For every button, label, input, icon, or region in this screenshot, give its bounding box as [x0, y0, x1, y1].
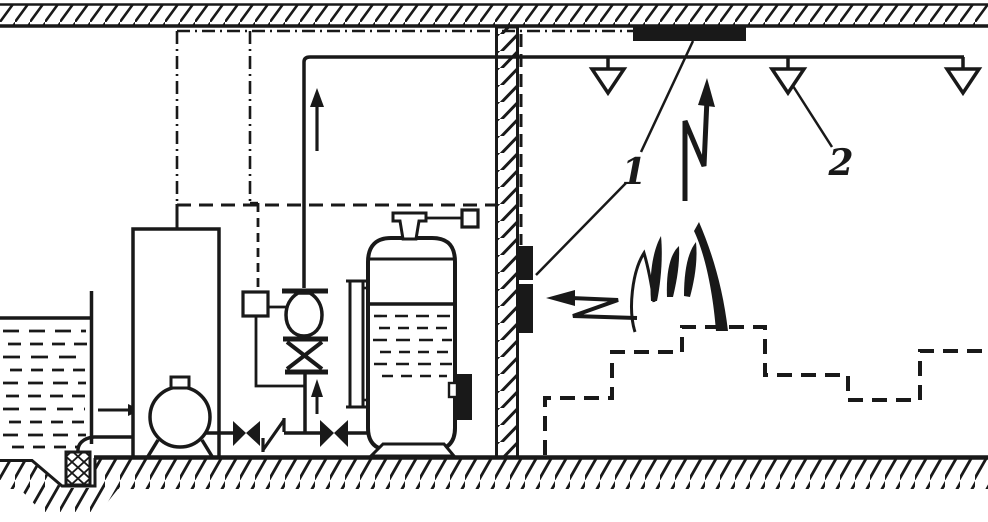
sprinkler-icon [772, 57, 804, 93]
stacked-goods-outline [545, 327, 986, 455]
wall-fire-detector [516, 246, 533, 333]
heat-bolt-up-icon [685, 78, 715, 201]
fitting-box [462, 210, 478, 227]
vessel-skirt [371, 444, 454, 456]
fire-suppression-schematic: 1 2 [0, 0, 988, 522]
level-gauge [346, 281, 369, 407]
gate-valve-icon [233, 421, 260, 446]
pump-nub [171, 377, 189, 388]
heat-bolt-left-icon [546, 290, 637, 318]
foot-valve-strainer [66, 452, 90, 485]
wall-hatch [497, 27, 518, 457]
pump-casing [150, 387, 210, 447]
flames-icon [632, 222, 728, 332]
floor [0, 458, 988, 514]
callout-label-2: 2 [827, 142, 853, 184]
deluge-valve-assembly [243, 291, 328, 433]
ceiling [0, 5, 988, 27]
sprinkler-icon [592, 57, 624, 93]
schematic-canvas: 1 2 [0, 0, 988, 522]
check-valve-icon [263, 418, 284, 452]
gate-valve-icon [320, 420, 348, 447]
pneumatic-tank [346, 210, 478, 456]
valve-bulb [286, 293, 322, 336]
leader-line-2 [793, 86, 832, 147]
discharge-line [205, 418, 372, 452]
floor-hatch [0, 459, 988, 513]
ceiling-fire-detector [633, 27, 746, 41]
callout-label-1: 1 [621, 151, 646, 193]
wall [497, 27, 518, 457]
vessel-body [368, 238, 455, 450]
flow-arrow-up-riser [310, 88, 324, 151]
ceiling-hatch [0, 5, 988, 25]
leader-line-1b [536, 183, 626, 275]
flow-arrow-up-valve [311, 379, 323, 414]
safety-valve-fitting [393, 213, 426, 239]
sprinkler-icon [947, 57, 979, 93]
water-basin [0, 291, 141, 447]
callouts: 1 2 [536, 41, 854, 275]
control-box [243, 292, 268, 316]
basin-water-dashes [3, 331, 88, 447]
